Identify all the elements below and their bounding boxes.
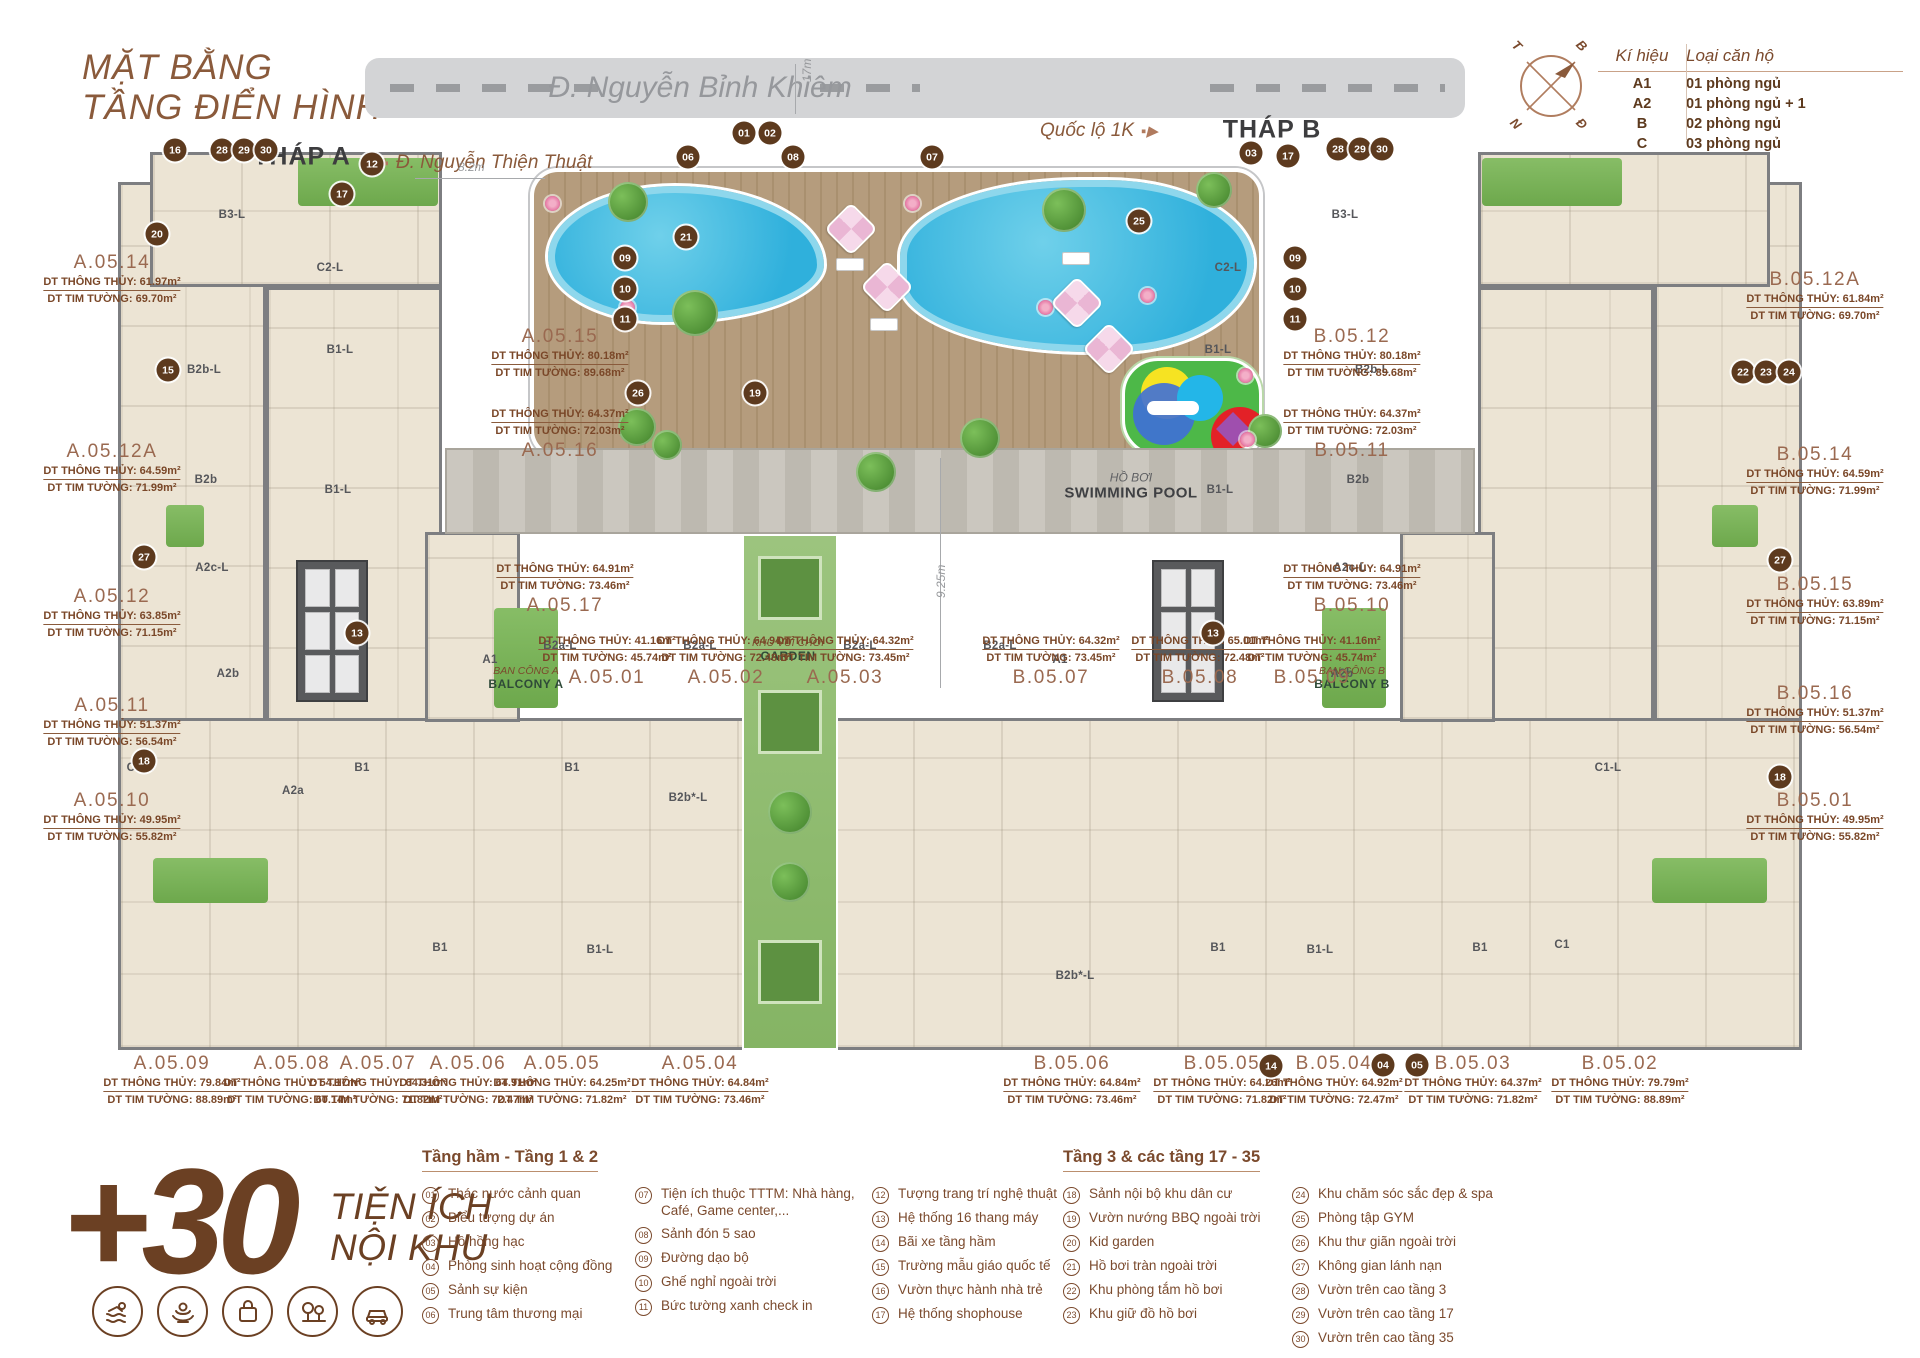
amenity-item-number: 14: [872, 1235, 889, 1252]
amenity-item: 03 Hồ hồng hạc: [422, 1234, 627, 1252]
unit-label: A.05.11 DT THÔNG THỦY: 51.37m² DT TIM TƯ…: [43, 695, 180, 748]
amenity-item: 19 Vườn nướng BBQ ngoài trời: [1063, 1210, 1278, 1228]
amenity-number-badge: 19: [744, 382, 767, 405]
legend-row: A2 01 phòng ngủ + 1: [1598, 96, 1903, 112]
unit-type-tag: A2c-L: [195, 562, 228, 574]
amenities-group2-title: Tầng 3 & các tầng 17 - 35: [1063, 1148, 1260, 1172]
amenity-number-badge: 03: [1240, 142, 1263, 165]
amenity-item-number: 11: [635, 1299, 652, 1316]
elevator-cell: [335, 569, 360, 607]
unit-clear-area: DT THÔNG THỦY: 51.37m²: [43, 719, 180, 734]
amenity-item-number: 13: [872, 1211, 889, 1228]
amenity-item: 10 Ghế nghỉ ngoài trời: [635, 1274, 860, 1292]
unit-id: B.05.15: [1777, 574, 1854, 596]
amenity-number-badge: 13: [1202, 622, 1225, 645]
road-dashes: [1210, 84, 1445, 92]
amenity-item-text: Phòng sinh hoạt cộng đồng: [448, 1258, 612, 1275]
unit-wall-area: DT TIM TƯỜNG: 89.68m²: [495, 367, 624, 379]
unit-id: A.05.02: [688, 667, 765, 689]
amenity-item-number: 02: [422, 1211, 439, 1228]
road-width-dimension-line: [795, 64, 796, 114]
amenity-item-text: Trung tâm thương mại: [448, 1306, 582, 1323]
amenity-number-badge: 16: [164, 139, 187, 162]
pool-label: HỒ BƠI SWIMMING POOL: [1064, 471, 1197, 502]
unit-label: B.05.14 DT THÔNG THỦY: 64.59m² DT TIM TƯ…: [1746, 444, 1883, 497]
amenity-number-badge: 05: [1406, 1054, 1429, 1077]
amenity-item: 27 Không gian lánh nạn: [1292, 1258, 1537, 1276]
unit-type-tag: B2b-L: [187, 364, 221, 376]
unit-wall-area: DT TIM TƯỜNG: 71.82m²: [497, 1094, 626, 1106]
unit-id: B.05.07: [1013, 667, 1090, 689]
amenity-item-number: 05: [422, 1283, 439, 1300]
tree: [672, 290, 718, 336]
amenity-number-badge: 22: [1732, 361, 1755, 384]
amenity-item-text: Khu chăm sóc sắc đẹp & spa: [1318, 1186, 1493, 1203]
unit-id: B.05.04: [1296, 1053, 1373, 1075]
unit-label: A.05.02 DT THÔNG THỦY: 64.94m² DT TIM TƯ…: [657, 635, 794, 689]
amenity-number-badge: 28: [1327, 138, 1350, 161]
amenity-number-badge: 30: [255, 139, 278, 162]
unit-type-tag: B1-L: [1205, 344, 1232, 356]
unit-clear-area: DT THÔNG THỦY: 64.32m²: [776, 635, 913, 650]
unit-clear-area: DT THÔNG THỦY: 80.18m²: [1283, 350, 1420, 365]
amenity-item: 22 Khu phòng tắm hồ bơi: [1063, 1282, 1278, 1300]
unit-clear-area: DT THÔNG THỦY: 79.84m²: [103, 1077, 240, 1092]
unit-wall-area: DT TIM TƯỜNG: 69.70m²: [47, 293, 176, 305]
unit-type-tag: B1-L: [587, 944, 614, 956]
amenity-item-number: 06: [422, 1307, 439, 1324]
unit-type-tag: C2-L: [1215, 262, 1242, 274]
unit-type-tag: A2a: [282, 785, 304, 797]
unit-wall-area: DT TIM TƯỜNG: 73.46m²: [500, 580, 629, 592]
unit-clear-area: DT THÔNG THỦY: 41.16m²: [1243, 635, 1380, 650]
unit-id: B.05.09: [1274, 667, 1351, 689]
amenity-number-badge: 09: [614, 247, 637, 270]
amenity-item-number: 08: [635, 1227, 652, 1244]
unit-id: B.05.06: [1034, 1053, 1111, 1075]
tree: [1196, 172, 1232, 208]
unit-id: A.05.14: [74, 252, 151, 274]
amenity-item-number: 01: [422, 1187, 439, 1204]
unit-wall-area: DT TIM TƯỜNG: 73.45m²: [780, 652, 909, 664]
amenity-item-text: Hồ bơi tràn ngoài trời: [1089, 1258, 1217, 1275]
amenity-number-badge: 24: [1778, 361, 1801, 384]
unit-wall-area: DT TIM TƯỜNG: 55.82m²: [1750, 831, 1879, 843]
unit-id: A.05.12A: [67, 441, 158, 463]
unit-clear-area: DT THÔNG THỦY: 64.25m²: [493, 1077, 630, 1092]
amenity-number-badge: 06: [677, 146, 700, 169]
page-title: MẶT BẰNG TẦNG ĐIỂN HÌNH: [82, 48, 382, 129]
unit-clear-area: DT THÔNG THỦY: 63.89m²: [1746, 598, 1883, 613]
amenity-item-text: Khu giữ đồ hồ bơi: [1089, 1306, 1197, 1323]
amenity-item-number: 26: [1292, 1235, 1309, 1252]
amenity-item-number: 03: [422, 1235, 439, 1252]
amenity-number-badge: 08: [782, 146, 805, 169]
amenity-item: 20 Kid garden: [1063, 1234, 1278, 1252]
amenity-item-text: Hệ thống 16 thang máy: [898, 1210, 1038, 1227]
legend-divider: [1686, 44, 1687, 140]
amenity-number-badge: 13: [346, 622, 369, 645]
amenity-item: 13 Hệ thống 16 thang máy: [872, 1210, 1087, 1228]
elevator-cell: [305, 612, 330, 650]
amenity-item-number: 04: [422, 1259, 439, 1276]
unit-clear-area: DT THÔNG THỦY: 64.59m²: [1746, 468, 1883, 483]
street-right: Quốc lộ 1K ▪▶: [1040, 120, 1158, 142]
unit-id: A.05.11: [74, 695, 149, 717]
unit-label: A.05.09 DT THÔNG THỦY: 79.84m² DT TIM TƯ…: [103, 1053, 240, 1106]
unit-type-tag: B1-L: [1207, 484, 1234, 496]
unit-type-legend: Kí hiệu Loại căn hộ A1 01 phòng ngủ A2 0…: [1598, 46, 1903, 152]
tree: [770, 862, 810, 902]
legend-type: 01 phòng ngủ: [1686, 76, 1781, 92]
amenity-item-text: Đường dạo bộ: [661, 1250, 749, 1267]
amenity-item: 30 Vườn trên cao tầng 35: [1292, 1330, 1537, 1348]
amenity-number-badge: 28: [211, 139, 234, 162]
amenity-item-text: Sảnh nội bộ khu dân cư: [1089, 1186, 1232, 1203]
amenities-col4: 18 Sảnh nội bộ khu dân cư 19 Vườn nướng …: [1063, 1186, 1278, 1324]
unit-wall-area: DT TIM TƯỜNG: 72.03m²: [1287, 425, 1416, 437]
amenity-number-badge: 01: [733, 122, 756, 145]
unit-wall-area: DT TIM TƯỜNG: 88.89m²: [1555, 1094, 1684, 1106]
amenity-item-number: 16: [872, 1283, 889, 1300]
unit-clear-area: DT THÔNG THỦY: 64.37m²: [1404, 1077, 1541, 1092]
elevator-cell: [305, 569, 330, 607]
unit-type-tag: B1-L: [1307, 944, 1334, 956]
amenity-number-badge: 20: [146, 223, 169, 246]
amenity-item-text: Bức tường xanh check in: [661, 1298, 813, 1315]
unit-type-tag: B3-L: [219, 209, 246, 221]
amenity-item-number: 15: [872, 1259, 889, 1276]
legend-type: 02 phòng ngủ: [1686, 116, 1781, 132]
unit-label: A.05.16 DT THÔNG THỦY: 64.37m² DT TIM TƯ…: [491, 408, 628, 462]
amenity-item: 14 Bãi xe tầng hầm: [872, 1234, 1087, 1252]
amenity-item-number: 09: [635, 1251, 652, 1268]
unit-type-tag: B1-L: [327, 344, 354, 356]
unit-label: A.05.15 DT THÔNG THỦY: 80.18m² DT TIM TƯ…: [491, 326, 628, 379]
amenity-number-badge: 12: [361, 153, 384, 176]
amenity-item: 26 Khu thư giãn ngoài trời: [1292, 1234, 1537, 1252]
unit-clear-area: DT THÔNG THỦY: 41.16m²: [538, 635, 675, 650]
page-title-line1: MẶT BẰNG: [82, 48, 382, 88]
lounger: [836, 258, 864, 271]
amenity-item-number: 27: [1292, 1259, 1309, 1276]
legend-type: 03 phòng ngủ: [1686, 136, 1781, 152]
unit-clear-area: DT THÔNG THỦY: 64.94m²: [657, 635, 794, 650]
amenity-icons-row: [92, 1286, 403, 1337]
unit-id: B.05.12A: [1770, 269, 1861, 291]
amenity-item-text: Trường mẫu giáo quốc tế: [898, 1258, 1050, 1275]
unit-id: A.05.17: [527, 595, 604, 617]
unit-wall-area: DT TIM TƯỜNG: 73.46m²: [1007, 1094, 1136, 1106]
amenity-item-number: 20: [1063, 1235, 1080, 1252]
legend-col-type: Loại căn hộ: [1686, 46, 1774, 66]
tree: [1042, 188, 1086, 232]
amenity-number-badge: 17: [1277, 145, 1300, 168]
garden-patch: [153, 858, 268, 903]
amenity-number-badge: 17: [331, 183, 354, 206]
legend-rows: A1 01 phòng ngủ A2 01 phòng ngủ + 1 B 02…: [1598, 76, 1903, 152]
amenity-number-badge: 30: [1371, 138, 1394, 161]
unit-label: A.05.12A DT THÔNG THỦY: 64.59m² DT TIM T…: [43, 441, 180, 494]
unit-clear-area: DT THÔNG THỦY: 51.37m²: [1746, 707, 1883, 722]
amenity-item-text: Sảnh sự kiện: [448, 1282, 528, 1299]
amenity-item: 06 Trung tâm thương mại: [422, 1306, 627, 1324]
compass: T B N Đ: [1505, 36, 1597, 132]
unit-wall-area: DT TIM TƯỜNG: 71.99m²: [47, 482, 176, 494]
unit-type-tag: C1: [1554, 939, 1569, 951]
legend-symbol: B: [1598, 116, 1686, 132]
amenity-number-badge: 10: [1284, 278, 1307, 301]
kids-pool-slide: [1147, 401, 1199, 415]
tree: [960, 418, 1000, 458]
amenity-item-text: Vườn nướng BBQ ngoài trời: [1089, 1210, 1260, 1227]
amenities-group1-title: Tầng hầm - Tầng 1 & 2: [422, 1148, 598, 1172]
amenities-col2: 07 Tiện ích thuộc TTTM: Nhà hàng, Café, …: [635, 1186, 860, 1316]
unit-id: A.05.12: [74, 586, 151, 608]
amenity-number-badge: 18: [133, 750, 156, 773]
unit-label: A.05.14 DT THÔNG THỦY: 61.97m² DT TIM TƯ…: [43, 252, 180, 305]
amenity-item-number: 18: [1063, 1187, 1080, 1204]
unit-clear-area: DT THÔNG THỦY: 64.91m²: [496, 563, 633, 578]
unit-id: A.05.15: [522, 326, 599, 348]
legend-symbol: A1: [1598, 76, 1686, 92]
amenity-number-badge: 23: [1755, 361, 1778, 384]
unit-wall-area: DT TIM TƯỜNG: 71.99m²: [1750, 485, 1879, 497]
unit-type-tag: B1-L: [325, 484, 352, 496]
parking-icon: [352, 1286, 403, 1337]
amenity-item-text: Kid garden: [1089, 1234, 1154, 1251]
legend-header: Kí hiệu Loại căn hộ: [1598, 46, 1903, 72]
unit-clear-area: DT THÔNG THỦY: 64.32m²: [982, 635, 1119, 650]
unit-wall-area: DT TIM TƯỜNG: 89.68m²: [1287, 367, 1416, 379]
amenity-item-text: Vườn thực hành nhà trẻ: [898, 1282, 1043, 1299]
unit-type-tag: B1: [1472, 942, 1487, 954]
unit-label: B.05.09 DT THÔNG THỦY: 41.16m² DT TIM TƯ…: [1243, 635, 1380, 689]
elevator-cell: [1191, 569, 1216, 607]
tree: [768, 790, 812, 834]
amenity-item: 08 Sảnh đón 5 sao: [635, 1226, 860, 1244]
deck-dimension: 8.2m: [458, 160, 485, 174]
pool-icon: [92, 1286, 143, 1337]
unit-wall-area: DT TIM TƯỜNG: 71.15m²: [47, 627, 176, 639]
legend-symbol: A2: [1598, 96, 1686, 112]
legend-row: A1 01 phòng ngủ: [1598, 76, 1903, 92]
tree: [652, 430, 682, 460]
page-title-line2: TẦNG ĐIỂN HÌNH: [82, 88, 382, 128]
tower-b-title: THÁP B: [1223, 116, 1322, 145]
amenity-number-badge: 21: [675, 226, 698, 249]
garden-patch: [1652, 858, 1767, 903]
amenity-number-badge: 27: [133, 546, 156, 569]
amenity-item: 21 Hồ bơi tràn ngoài trời: [1063, 1258, 1278, 1276]
unit-id: B.05.14: [1777, 444, 1854, 466]
unit-clear-area: DT THÔNG THỦY: 61.97m²: [43, 276, 180, 291]
amenity-item: 29 Vườn trên cao tầng 17: [1292, 1306, 1537, 1324]
plus30-logo: +30: [62, 1146, 292, 1296]
legend-symbol: C: [1598, 136, 1686, 152]
amenities-col1: 01 Thác nước cảnh quan 02 Biểu tượng dự …: [422, 1186, 627, 1324]
pool-label-en: SWIMMING POOL: [1064, 485, 1197, 502]
unit-id: B.05.08: [1162, 667, 1239, 689]
amenity-item-number: 28: [1292, 1283, 1309, 1300]
amenity-number-badge: 07: [921, 146, 944, 169]
unit-clear-area: DT THÔNG THỦY: 79.79m²: [1551, 1077, 1688, 1092]
amenity-item-number: 17: [872, 1307, 889, 1324]
amenity-item-text: Hệ thống shophouse: [898, 1306, 1023, 1323]
amenity-item-number: 23: [1063, 1307, 1080, 1324]
unit-wall-area: DT TIM TƯỜNG: 45.74m²: [1247, 652, 1376, 664]
amenity-item: 24 Khu chăm sóc sắc đẹp & spa: [1292, 1186, 1537, 1204]
unit-wall-area: DT TIM TƯỜNG: 69.70m²: [1750, 310, 1879, 322]
unit-clear-area: DT THÔNG THỦY: 64.37m²: [1283, 408, 1420, 423]
legend-row: C 03 phòng ngủ: [1598, 136, 1903, 152]
tower-b-inner-wing: [1478, 287, 1654, 732]
amenity-item-number: 25: [1292, 1211, 1309, 1228]
lounger: [870, 318, 898, 331]
unit-clear-area: DT THÔNG THỦY: 64.84m²: [1003, 1077, 1140, 1092]
amenity-item: 15 Trường mẫu giáo quốc tế: [872, 1258, 1087, 1276]
amenity-item-text: Phòng tập GYM: [1318, 1210, 1414, 1227]
unit-id: B.05.05: [1184, 1053, 1261, 1075]
unit-id: B.05.11: [1314, 440, 1389, 462]
amenity-number-badge: 18: [1769, 766, 1792, 789]
amenity-number-badge: 25: [1128, 210, 1151, 233]
amenity-item-text: Thác nước cảnh quan: [448, 1186, 581, 1203]
amenity-item-text: Hồ hồng hạc: [448, 1234, 525, 1251]
amenity-item-number: 24: [1292, 1187, 1309, 1204]
unit-label: B.05.16 DT THÔNG THỦY: 51.37m² DT TIM TƯ…: [1746, 683, 1883, 736]
unit-clear-area: DT THÔNG THỦY: 64.92m²: [1265, 1077, 1402, 1092]
unit-id: A.05.03: [807, 667, 884, 689]
amenity-item-number: 07: [635, 1187, 652, 1204]
unit-label: A.05.10 DT THÔNG THỦY: 49.95m² DT TIM TƯ…: [43, 790, 180, 843]
unit-type-tag: C2-L: [317, 262, 344, 274]
amenity-item-text: Biểu tượng dự án: [448, 1210, 555, 1227]
amenity-item-number: 12: [872, 1187, 889, 1204]
unit-type-tag: B1: [432, 942, 447, 954]
unit-id: A.05.04: [662, 1053, 739, 1075]
flower-bush: [1038, 300, 1053, 315]
unit-label: B.05.10 DT THÔNG THỦY: 64.91m² DT TIM TƯ…: [1283, 563, 1420, 617]
garden-patch: [1712, 505, 1758, 547]
unit-id: A.05.16: [522, 440, 599, 462]
amenity-item: 09 Đường dạo bộ: [635, 1250, 860, 1268]
amenity-item: 23 Khu giữ đồ hồ bơi: [1063, 1306, 1278, 1324]
amenity-number-badge: 02: [759, 122, 782, 145]
unit-wall-area: DT TIM TƯỜNG: 73.45m²: [986, 652, 1115, 664]
unit-wall-area: DT TIM TƯỜNG: 45.74m²: [542, 652, 671, 664]
amenity-number-badge: 09: [1284, 247, 1307, 270]
shopping-icon: [222, 1286, 273, 1337]
unit-label: A.05.05 DT THÔNG THỦY: 64.25m² DT TIM TƯ…: [493, 1053, 630, 1106]
bottom-residential-bar: [118, 718, 1802, 1050]
unit-label: B.05.15 DT THÔNG THỦY: 63.89m² DT TIM TƯ…: [1746, 574, 1883, 627]
unit-label: B.05.11 DT THÔNG THỦY: 64.37m² DT TIM TƯ…: [1283, 408, 1420, 462]
lounger: [1062, 252, 1090, 265]
legend-col-symbol: Kí hiệu: [1598, 46, 1686, 66]
legend-row: B 02 phòng ngủ: [1598, 116, 1903, 132]
unit-label: B.05.01 DT THÔNG THỦY: 49.95m² DT TIM TƯ…: [1746, 790, 1883, 843]
elevator-cell: [1161, 569, 1186, 607]
unit-wall-area: DT TIM TƯỜNG: 73.46m²: [1287, 580, 1416, 592]
arrow-right-icon: ▪▶: [1141, 122, 1158, 140]
unit-type-tag: B2b: [1347, 474, 1370, 486]
amenity-number-badge: 10: [614, 278, 637, 301]
unit-wall-area: DT TIM TƯỜNG: 56.54m²: [47, 736, 176, 748]
unit-wall-area: DT TIM TƯỜNG: 72.03m²: [495, 425, 624, 437]
unit-clear-area: DT THÔNG THỦY: 49.95m²: [1746, 814, 1883, 829]
garden-square: [758, 556, 822, 620]
unit-id: B.05.01: [1777, 790, 1854, 812]
amenity-item: 16 Vườn thực hành nhà trẻ: [872, 1282, 1087, 1300]
unit-type-tag: B1: [1210, 942, 1225, 954]
unit-label: B.05.12A DT THÔNG THỦY: 61.84m² DT TIM T…: [1746, 269, 1883, 322]
amenity-item-text: Khu thư giãn ngoài trời: [1318, 1234, 1456, 1251]
amenity-number-badge: 11: [614, 308, 637, 331]
amenity-item-text: Bãi xe tầng hầm: [898, 1234, 996, 1251]
unit-id: A.05.01: [569, 667, 646, 689]
unit-label: B.05.07 DT THÔNG THỦY: 64.32m² DT TIM TƯ…: [982, 635, 1119, 689]
tree: [608, 182, 648, 222]
flower-bush: [545, 196, 560, 211]
amenities-col3: 12 Tượng trang trí nghệ thuật 13 Hệ thốn…: [872, 1186, 1087, 1324]
pool-label-vi: HỒ BƠI: [1064, 471, 1197, 485]
garden-patch: [1482, 158, 1622, 206]
amenity-item: 17 Hệ thống shophouse: [872, 1306, 1087, 1324]
amenity-item-text: Tượng trang trí nghệ thuật: [898, 1186, 1057, 1203]
amenity-item-text: Không gian lánh nạn: [1318, 1258, 1442, 1275]
unit-id: B.05.12: [1314, 326, 1391, 348]
flower-bush: [905, 196, 920, 211]
unit-wall-area: DT TIM TƯỜNG: 71.82m²: [1408, 1094, 1537, 1106]
amenity-number-badge: 29: [1349, 138, 1372, 161]
amenity-item: 28 Vườn trên cao tầng 3: [1292, 1282, 1537, 1300]
elevator-cell: [305, 655, 330, 693]
unit-wall-area: DT TIM TƯỜNG: 55.82m²: [47, 831, 176, 843]
unit-label: A.05.03 DT THÔNG THỦY: 64.32m² DT TIM TƯ…: [776, 635, 913, 689]
garden-patch: [166, 505, 204, 547]
amenity-item: 07 Tiện ích thuộc TTTM: Nhà hàng, Café, …: [635, 1186, 860, 1220]
amenity-item-number: 22: [1063, 1283, 1080, 1300]
amenity-item-text: Vườn trên cao tầng 3: [1318, 1282, 1446, 1299]
street-left-label: Đ. Nguyễn Thiện Thuật: [396, 152, 592, 174]
road-width-dimension: 17m: [800, 59, 814, 82]
unit-clear-area: DT THÔNG THỦY: 64.59m²: [43, 465, 180, 480]
unit-type-tag: B1: [564, 762, 579, 774]
amenity-item-text: Vườn trên cao tầng 17: [1318, 1306, 1454, 1323]
unit-label: B.05.12 DT THÔNG THỦY: 80.18m² DT TIM TƯ…: [1283, 326, 1420, 379]
unit-clear-area: DT THÔNG THỦY: 49.95m²: [43, 814, 180, 829]
trees-icon: [287, 1286, 338, 1337]
tower-b-connector: [1400, 532, 1495, 722]
amenity-number-badge: 29: [233, 139, 256, 162]
unit-wall-area: DT TIM TƯỜNG: 56.54m²: [1750, 724, 1879, 736]
garden-square: [758, 940, 822, 1004]
unit-clear-area: DT THÔNG THỦY: 64.91m²: [1283, 563, 1420, 578]
amenity-item: 11 Bức tường xanh check in: [635, 1298, 860, 1316]
amenity-number-badge: 26: [627, 382, 650, 405]
amenity-item-text: Khu phòng tắm hồ bơi: [1089, 1282, 1222, 1299]
unit-label: A.05.01 DT THÔNG THỦY: 41.16m² DT TIM TƯ…: [538, 635, 675, 689]
unit-clear-area: DT THÔNG THỦY: 61.84m²: [1746, 293, 1883, 308]
spa-icon: [157, 1286, 208, 1337]
street-right-label: Quốc lộ 1K: [1040, 120, 1134, 142]
amenity-item: 05 Sảnh sự kiện: [422, 1282, 627, 1300]
amenity-item-text: Vườn trên cao tầng 35: [1318, 1330, 1454, 1347]
unit-id: B.05.10: [1314, 595, 1391, 617]
unit-id: B.05.16: [1777, 683, 1854, 705]
amenity-item-text: Ghế nghỉ ngoài trời: [661, 1274, 776, 1291]
